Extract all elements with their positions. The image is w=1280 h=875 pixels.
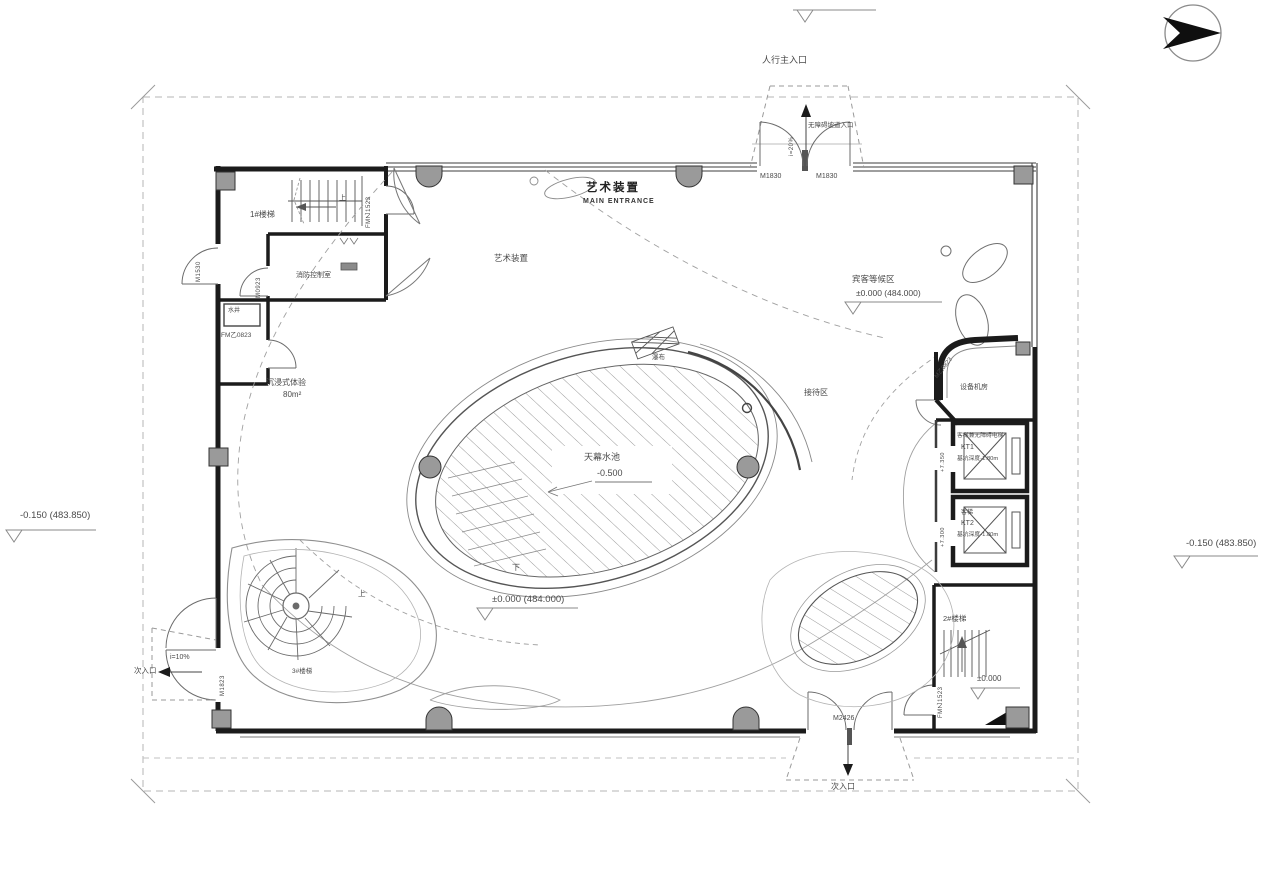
door-label-m1830-right: M1830 (816, 173, 837, 181)
north-arrow-icon (1163, 5, 1221, 61)
left-entrance (152, 628, 216, 700)
elevation-marker-top (793, 10, 876, 22)
elevator-kt1-pit: 基坑深度-1.80m (957, 456, 998, 462)
immersive-room-label: 沉浸式体验 (266, 379, 306, 388)
door-label-m0923: M0923 (256, 266, 263, 298)
stair2-label: 2#楼梯 (943, 615, 966, 623)
art-installation-mid-label: 艺术装置 (494, 254, 528, 263)
floor-plan-drawing (0, 0, 1280, 875)
site-elevation-right: -0.150 (483.850) (1186, 539, 1256, 549)
reception-label: 接待区 (804, 389, 828, 398)
door-label-m2426: M2426 (833, 715, 854, 723)
curtain-walls (386, 163, 1037, 347)
stair1-label: 1#楼梯 (250, 211, 275, 220)
stair3-label: 3#楼梯 (292, 668, 312, 675)
main-entrance-en-title: MAIN ENTRANCE (583, 198, 655, 206)
secondary-entrance-bottom-label: 次入口 (831, 783, 855, 792)
door-label-m1830-left: M1830 (760, 173, 781, 181)
door-label-m1530: M1530 (196, 248, 203, 282)
floor-plan-page: 人行主入口 无障碍坡道入口 i=20% M1830 M1830 艺术装置 MAI… (0, 0, 1280, 875)
mound (762, 543, 954, 707)
stair3-up-label: 上 (358, 590, 366, 598)
pool-elevation: -0.500 (597, 469, 623, 479)
immersive-area-label: 80m² (283, 391, 301, 400)
stair2-elevation: ±0.000 (977, 675, 1001, 684)
bottom-entrance (786, 692, 914, 780)
elevator-kt2-dim: +7.300 (940, 515, 946, 547)
art-installation-title: 艺术装置 (586, 182, 640, 195)
equipment-room-label: 设备机房 (960, 384, 988, 392)
door-label-fm0823: FM乙0823 (221, 332, 251, 339)
stair1-up-label: 上 (339, 195, 346, 203)
waterfall-label: 瀑布 (652, 354, 665, 361)
pool-label: 天幕水池 (584, 453, 620, 463)
guest-waiting-elevation: ±0.000 (484.000) (856, 289, 921, 298)
elevators (936, 420, 1027, 572)
barrier-free-ramp-note: 无障碍坡道入口 (808, 122, 854, 129)
site-elevation-left: -0.150 (483.850) (20, 511, 90, 521)
left-ramp-slope: i=10% (170, 654, 190, 662)
elevator-kt1-line1: 客梯兼无障碍电梯 (957, 433, 1003, 439)
door-label-m1823: M1823 (220, 660, 227, 696)
pool-down-label: 下 (512, 564, 520, 573)
main-ramp-slope: i=20% (789, 116, 796, 156)
secondary-entrance-left-label: 次入口 (134, 667, 157, 675)
shaft-label: 水井 (228, 308, 240, 315)
main-entrance-label: 人行主入口 (762, 56, 807, 66)
door-label-fm1523-br: FM乙1523 (938, 680, 945, 718)
elevator-kt2-id: KT2 (961, 520, 974, 528)
spiral-stair (227, 540, 436, 703)
door-label-fm1523-top: FM乙1523 (366, 186, 373, 228)
elevator-kt1-id: KT1 (961, 444, 974, 452)
elevator-kt2-line1: 客梯 (961, 510, 973, 517)
fire-control-room-label: 消防控制室 (296, 272, 331, 280)
floor-elevation-center: ±0.000 (484.000) (492, 595, 564, 605)
elevator-kt1-dim: +7.350 (940, 440, 946, 472)
elevator-kt2-pit: 基坑深度-1.80m (957, 532, 998, 538)
guest-waiting-label: 宾客等候区 (852, 275, 895, 284)
